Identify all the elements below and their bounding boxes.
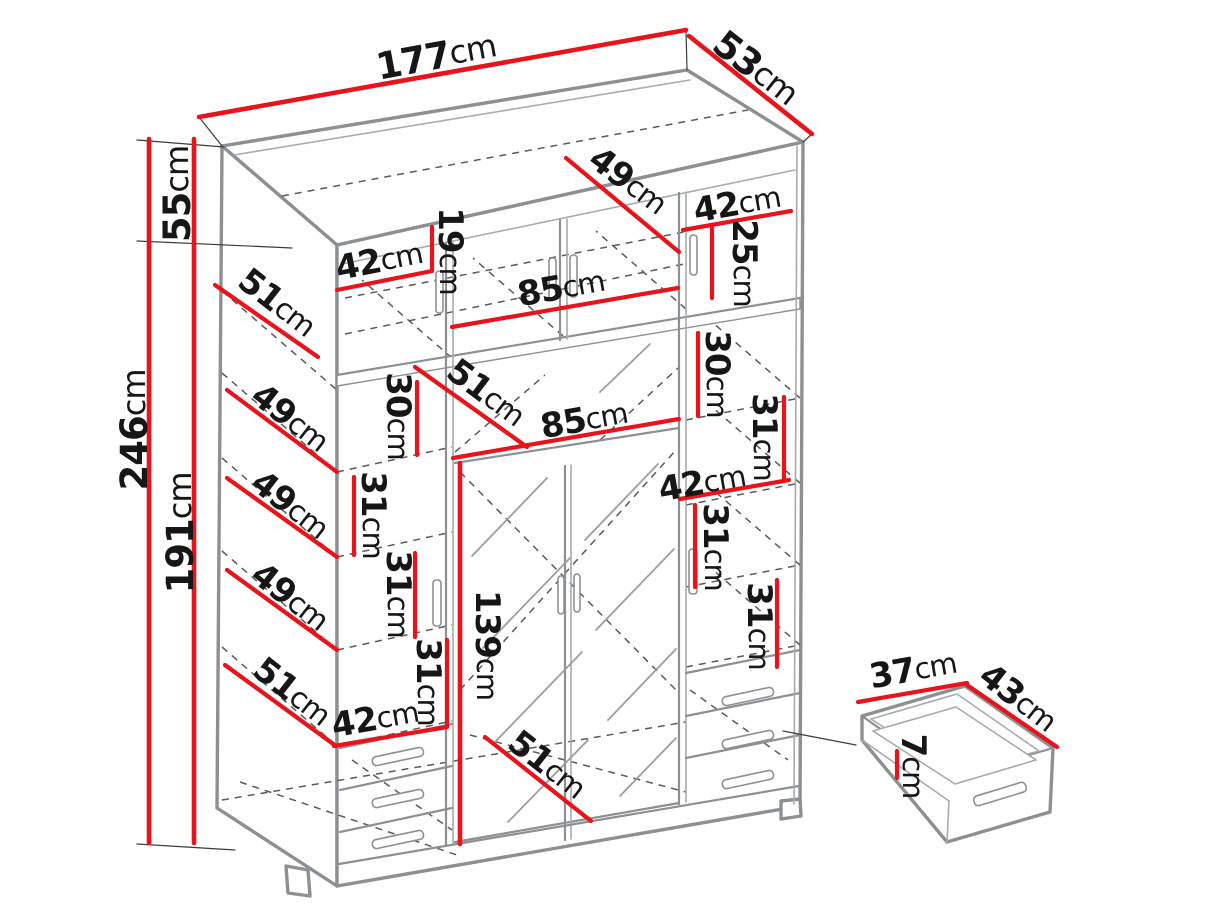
dim-label-top-section-height: 55cm (156, 146, 199, 242)
dim-label-left-height-31-1: 31cm (353, 471, 393, 559)
dim-label-mirror-door-height: 139cm (467, 590, 507, 700)
dim-label-drawer-width: 37cm (866, 643, 959, 698)
dim-label-drawer-height: 7cm (893, 734, 933, 799)
dim-label-total-height: 246cm (113, 370, 156, 491)
dim-label-right-height-31-3: 31cm (739, 582, 779, 670)
handle-mirror-left-door (558, 576, 564, 614)
left-foot (286, 866, 310, 896)
dim-label-right-height-30: 30cm (697, 330, 737, 418)
dim-label-top-height-25: 25cm (724, 219, 764, 307)
dim-label-total-width: 177cm (373, 24, 500, 88)
dim-label-right-height-31-2: 31cm (695, 503, 735, 591)
handle-top-right-door (690, 235, 697, 275)
dim-label-left-height-31-2: 31cm (378, 550, 418, 638)
diagram-canvas: 177cm53cm49cm42cm19cm85cm42cm25cm51cm51c… (0, 0, 1214, 911)
right-foot (781, 799, 801, 819)
dim-label-top-height-19: 19cm (430, 207, 470, 295)
handle-mirror-right-door (574, 574, 580, 612)
handle-left-door (433, 580, 441, 626)
dim-label-main-section-height: 191cm (159, 473, 202, 594)
dim-label-mid-height-30: 30cm (378, 372, 418, 460)
dim-label-right-height-31-1: 31cm (744, 393, 784, 481)
wardrobe-dimension-diagram: 177cm53cm49cm42cm19cm85cm42cm25cm51cm51c… (0, 0, 1214, 911)
